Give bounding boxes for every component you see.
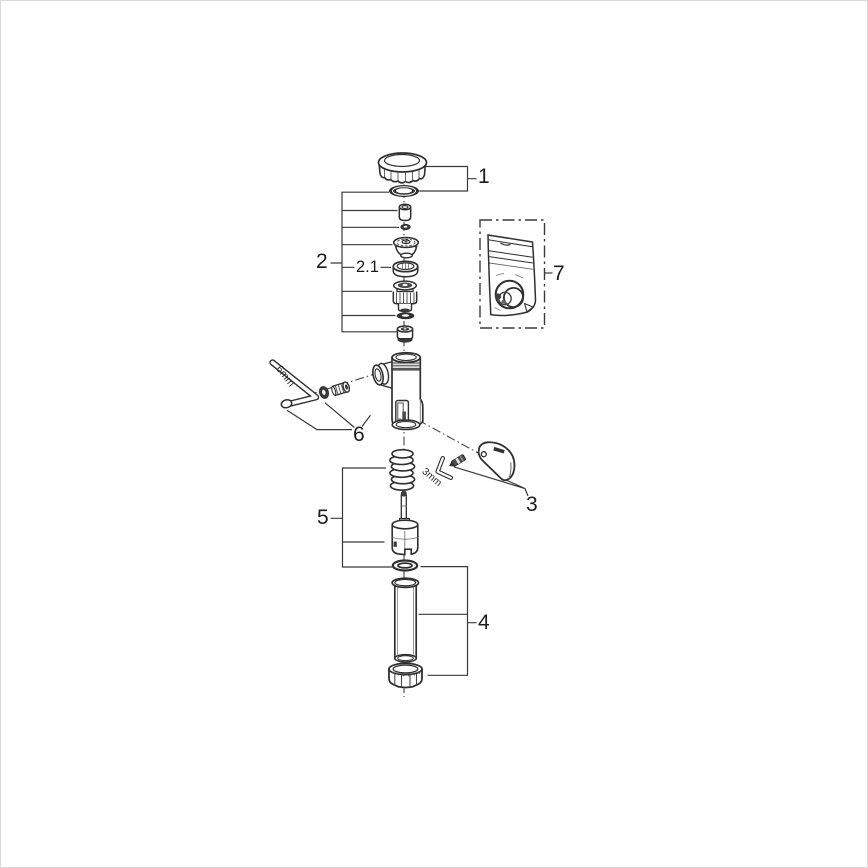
piston (392, 491, 418, 555)
callout-1: 1 (478, 166, 490, 187)
control-knob (379, 153, 427, 183)
cartridge-valve (393, 281, 416, 312)
callout-bracket-1 (419, 167, 476, 192)
callout-bracket-5 (331, 468, 393, 567)
callout-7: 7 (553, 263, 565, 284)
flow-regulator (394, 238, 419, 258)
piston-o-ring (393, 561, 417, 571)
stack-bushing (399, 204, 410, 220)
stack-o-ring (397, 312, 415, 319)
union-nut (389, 663, 422, 687)
handle-pin (448, 454, 466, 468)
callout-bracket-4 (419, 567, 477, 676)
stack-nut (397, 326, 412, 342)
flush-tube (392, 578, 418, 662)
callout-6: 6 (353, 424, 365, 445)
callout-3: 3 (526, 494, 538, 515)
knob-o-ring (389, 185, 419, 197)
callout-bracket-3 (454, 467, 528, 496)
callout-4: 4 (478, 612, 490, 633)
callout-2-1: 2.1 (356, 259, 379, 276)
valve-body (392, 353, 423, 430)
callout-5: 5 (317, 507, 329, 528)
port-washer (318, 386, 330, 400)
service-kit-bag (488, 235, 536, 315)
callout-2: 2 (316, 251, 328, 272)
side-port (371, 362, 393, 389)
diagram-linework (1, 1, 868, 868)
piston-spring (390, 450, 415, 490)
hex-key-3mm (438, 458, 451, 478)
exploded-parts-diagram: 1 2 2.1 3 4 5 6 7 6mm 3mm (0, 0, 868, 868)
handle-centerline (418, 420, 480, 454)
seal-ring-2-1 (393, 261, 418, 276)
stack-washer (401, 224, 410, 229)
handle-hole (481, 452, 486, 457)
flush-handle (479, 442, 515, 480)
coupling-screw (331, 381, 351, 396)
kit-part (495, 293, 501, 299)
